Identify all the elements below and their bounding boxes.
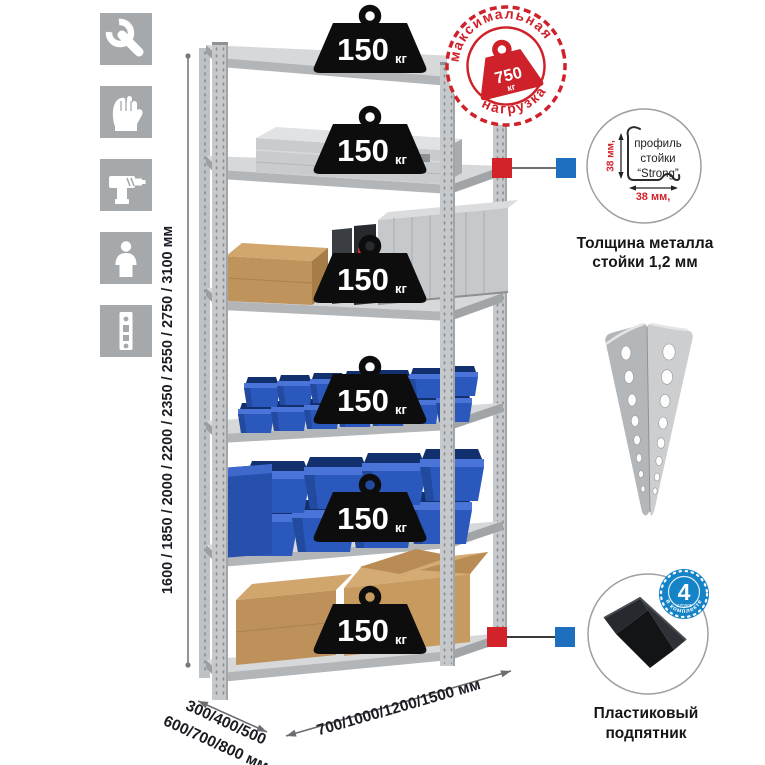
height-dimension-label: 1600 / 1850 / 2000 / 2200 / 2350 / 2550 … (160, 226, 176, 594)
callout-marker-blue-bottom (555, 627, 575, 647)
blue-tote (222, 464, 272, 558)
height-dimension: 1600 / 1850 / 2000 / 2200 / 2350 / 2550 … (160, 53, 191, 667)
profile-caption-line2: стойки 1,2 мм (592, 254, 697, 271)
person-icon (100, 232, 152, 284)
included-badge: 4 штуки в комплекте (659, 569, 709, 619)
load-unit: кг (395, 51, 408, 66)
callout-bottom (487, 627, 575, 647)
sidebar (100, 13, 152, 357)
badge-value: 4 (678, 579, 691, 605)
plastic-foot-detail: 4 штуки в комплекте Пластиковый подпятни… (588, 569, 709, 742)
foot-caption-line2: подпятник (605, 725, 686, 742)
profile-caption-line1: Толщина металла (577, 235, 714, 252)
load-value: 150 (337, 262, 389, 297)
profile-label-line3: “Strong” (637, 168, 679, 180)
load-unit: кг (395, 152, 408, 167)
upright-post-photo (605, 324, 693, 516)
load-unit: кг (395, 402, 408, 417)
cardboard-box (226, 243, 328, 305)
load-value: 150 (337, 501, 389, 536)
wrench-icon (100, 13, 152, 65)
gloves-icon (100, 86, 152, 138)
foot-caption-line1: Пластиковый (594, 705, 699, 722)
load-value: 150 (337, 133, 389, 168)
callout-top (492, 158, 576, 178)
storage-bin (238, 403, 274, 433)
max-load-stamp: максимальная нагрузка 750 кг (434, 0, 577, 138)
detail-circle (587, 109, 701, 223)
load-value: 150 (337, 613, 389, 648)
post-back-right (493, 62, 507, 643)
shelf-load-badge-4: 150 кг (314, 359, 427, 424)
product-illustration: 1600 / 1850 / 2000 / 2200 / 2350 / 2550 … (0, 0, 765, 765)
load-unit: кг (395, 281, 408, 296)
illustration: 1600 / 1850 / 2000 / 2200 / 2350 / 2550 … (0, 0, 765, 765)
profile-label-line1: профиль (634, 138, 682, 150)
rack-post-icon (100, 305, 152, 357)
post-front-right (440, 62, 455, 666)
callout-marker-red-top (492, 158, 512, 178)
profile-dim-vertical-label: 38 мм, (606, 140, 617, 172)
load-unit: кг (395, 520, 408, 535)
width-dimension-label: 700/1000/1200/1500 мм (315, 676, 483, 739)
drill-icon (100, 159, 152, 211)
post-front-left (212, 42, 228, 700)
load-unit: кг (395, 632, 408, 647)
callout-marker-blue-top (556, 158, 576, 178)
post-back-left (199, 48, 210, 678)
shelf-load-badge-2: 150 кг (314, 109, 427, 174)
profile-label-line2: стойки (640, 153, 675, 165)
shelf-load-badge-1: 150 кг (314, 8, 427, 73)
storage-bin (244, 377, 280, 407)
depth-dimension: 300/400/500 600/700/800 мм (161, 697, 271, 765)
profile-dim-horizontal-label: 38 мм, (636, 191, 671, 203)
load-value: 150 (337, 32, 389, 67)
width-dimension: 700/1000/1200/1500 мм (285, 668, 512, 740)
post-profile-detail: 38 мм, 38 мм, профиль стойки “Strong” То… (577, 109, 714, 271)
callout-marker-red-bottom (487, 627, 507, 647)
load-value: 150 (337, 383, 389, 418)
storage-bin (277, 375, 313, 405)
